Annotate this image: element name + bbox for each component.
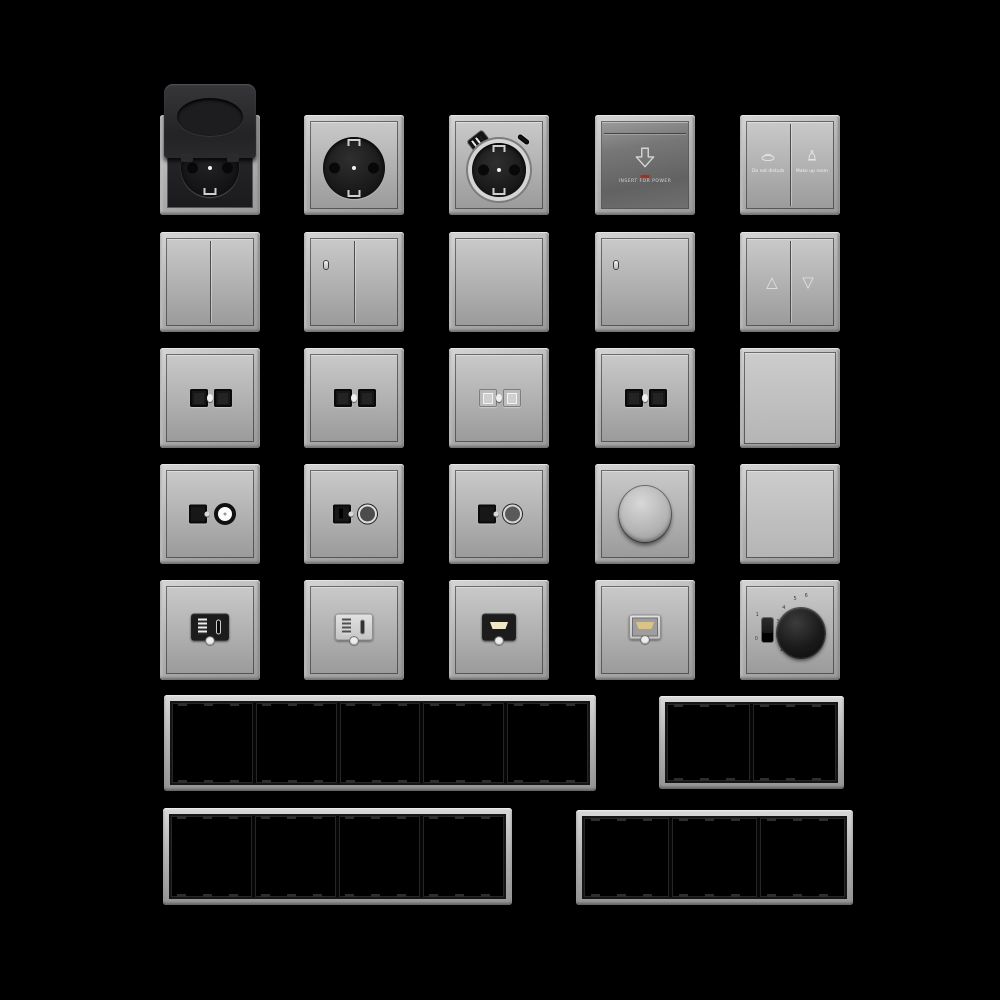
switch-face: Do not disturb Make up room: [747, 122, 833, 208]
tile-usb-charger-grey: [304, 580, 404, 680]
thermostat-switch: [762, 618, 773, 642]
frame-window: [256, 703, 337, 783]
earth-clip-icon: [348, 190, 361, 197]
tile-hdmi-outlet-grey: [595, 580, 695, 680]
tile-hdmi-outlet-black: [449, 580, 549, 680]
usb-a-port-icon: [342, 618, 351, 634]
arrow-down-icon: [632, 146, 658, 174]
rocker-face: [311, 239, 397, 325]
hinged-lid: [164, 84, 256, 158]
do-not-disturb-icon: [760, 147, 776, 166]
switch-on-label: 1: [756, 612, 759, 618]
center-dot: [642, 394, 648, 402]
hdmi-module: [629, 614, 661, 639]
make-up-room-label: Make up room: [795, 169, 829, 175]
tile-usb-charger-black: [160, 580, 260, 680]
outlet-face: [311, 355, 397, 441]
earth-clip-icon: [493, 145, 506, 152]
frame-inner: [665, 702, 838, 783]
tile-dual-data-outlet: [304, 348, 404, 448]
tile-single-rocker-switch: [449, 232, 549, 332]
cover-frame-2-gang: [659, 696, 844, 789]
schuko-recess-icon: [472, 143, 526, 197]
thermostat-knob: [777, 608, 825, 658]
coax-port-icon: [358, 505, 377, 524]
frame-window: [667, 704, 750, 781]
tile-schuko-socket: [304, 115, 404, 215]
switch-off-label: 0: [755, 636, 758, 642]
data-port-icon: [358, 389, 376, 407]
data-port-icon: [479, 389, 497, 407]
center-dot: [497, 168, 501, 172]
tile-blank-cover-plate: [740, 464, 840, 564]
hdmi-port-icon: [636, 622, 654, 629]
coax-port-icon: [503, 505, 522, 524]
rocker-divider: [790, 241, 791, 323]
cover-frame-3-gang: [576, 810, 853, 905]
frame-inner: [169, 814, 506, 899]
data-port-icon: [334, 389, 352, 407]
make-up-room-icon: [805, 147, 819, 166]
center-dot: [207, 394, 213, 402]
data-port-icon: [625, 389, 643, 407]
tile-dual-data-outlet: [160, 348, 260, 448]
dial-number: 4: [782, 605, 785, 611]
shutter-down-icon: ▽: [802, 273, 814, 291]
outlet-face: [602, 355, 688, 441]
outlet-face: [311, 471, 397, 557]
product-render-sheet: INSERT FOR POWER Do not disturb: [0, 0, 1000, 1000]
tile-tv-sat-outlet: [449, 464, 549, 564]
tile-shutter-rocker-switch: △ ▽: [740, 232, 840, 332]
tile-blank-rocker-plate: [740, 348, 840, 448]
coax-port-icon: [214, 503, 236, 525]
usb-charger-module: [335, 613, 373, 640]
data-port-icon: [503, 389, 521, 407]
socket-hole: [509, 165, 520, 176]
center-dot: [496, 394, 502, 402]
frame-window: [340, 703, 421, 783]
blank-face: [747, 471, 833, 557]
tile-double-rocker-switch-indicator: [304, 232, 404, 332]
rocker-face: [456, 239, 542, 325]
tile-rotary-dimmer: [595, 464, 695, 564]
data-port-icon: [649, 389, 667, 407]
module-screw: [206, 637, 214, 645]
frame-window: [672, 818, 757, 897]
socket-face: [456, 122, 542, 208]
frame-window: [584, 818, 669, 897]
dimmer-face: [602, 471, 688, 557]
frame-window: [760, 818, 845, 897]
tile-tv-sat-outlet: [304, 464, 404, 564]
rocker-divider: [210, 241, 211, 323]
data-port-icon: [190, 389, 208, 407]
center-dot: [204, 512, 209, 517]
outlet-face: [167, 355, 253, 441]
frame-window: [255, 816, 336, 897]
socket-face: [311, 122, 397, 208]
card-slot-seam: [604, 133, 686, 134]
status-led: [641, 175, 650, 178]
tile-schuko-socket-with-hinged-lid: [160, 115, 260, 215]
socket-hole: [187, 162, 198, 173]
center-dot: [351, 394, 357, 402]
blank-face: [745, 353, 835, 443]
key-card-face: INSERT FOR POWER: [602, 122, 688, 208]
frame-inner: [170, 701, 590, 785]
thermostat-face: 1 0 1 2 3 4 5 6: [747, 587, 833, 673]
module-screw: [350, 637, 358, 645]
tile-single-rocker-switch-indicator: [595, 232, 695, 332]
outlet-face: [167, 587, 253, 673]
outlet-face: [167, 471, 253, 557]
dimmer-knob: [619, 486, 671, 542]
outlet-face: [311, 587, 397, 673]
center-dot: [348, 512, 353, 517]
center-dot: [208, 166, 212, 170]
center-dot: [493, 512, 498, 517]
dial-number: 6: [805, 593, 808, 599]
do-not-disturb-rocker: Do not disturb: [747, 124, 789, 206]
indicator-led: [324, 261, 328, 269]
socket-hole: [368, 162, 379, 173]
rocker-face: [167, 239, 253, 325]
keycard-label: INSERT FOR POWER: [602, 179, 688, 184]
module-screw: [495, 637, 503, 645]
earth-clip-icon: [348, 139, 361, 146]
usb-charger-module: [191, 613, 229, 640]
dial-number: 5: [793, 596, 796, 602]
earth-clip-icon: [204, 188, 217, 195]
lid-seal-recess: [177, 98, 243, 136]
center-dot: [352, 166, 356, 170]
tile-dual-data-outlet-shuttered: [449, 348, 549, 448]
socket-hole: [222, 162, 233, 173]
cover-frame-4-gang: [163, 808, 512, 905]
outlet-face: [456, 471, 542, 557]
socket-hole: [329, 162, 340, 173]
frame-window: [339, 816, 420, 897]
indicator-led: [614, 261, 618, 269]
frame-window: [423, 816, 504, 897]
hdmi-module: [482, 613, 516, 640]
usb-a-port-icon: [198, 618, 207, 634]
frame-window: [753, 704, 836, 781]
tile-hotel-service-switch: Do not disturb Make up room: [740, 115, 840, 215]
outlet-face: [602, 587, 688, 673]
hdmi-port-icon: [490, 622, 508, 629]
frame-window: [507, 703, 588, 783]
frame-window: [423, 703, 504, 783]
data-port-icon: [214, 389, 232, 407]
frame-inner: [582, 816, 847, 899]
tile-tv-sat-outlet: [160, 464, 260, 564]
do-not-disturb-label: Do not disturb: [751, 169, 785, 175]
tile-thermostat: 1 0 1 2 3 4 5 6: [740, 580, 840, 680]
rocker-face: △ ▽: [747, 239, 833, 325]
earth-clip-icon: [493, 188, 506, 195]
make-up-room-rocker: Make up room: [791, 124, 833, 206]
module-screw: [641, 636, 649, 644]
usb-c-port-icon: [517, 133, 530, 145]
tile-schuko-socket-usb: [449, 115, 549, 215]
tile-double-rocker-switch: [160, 232, 260, 332]
usb-c-port-icon: [217, 620, 220, 633]
frame-window: [171, 816, 252, 897]
usb-c-port-icon: [361, 620, 364, 633]
outlet-face: [456, 587, 542, 673]
rocker-face: [602, 239, 688, 325]
outlet-face: [456, 355, 542, 441]
socket-hole: [478, 165, 489, 176]
rocker-divider: [354, 241, 355, 323]
frame-window: [172, 703, 253, 783]
schuko-recess-icon: [323, 137, 385, 199]
tile-dual-data-outlet: [595, 348, 695, 448]
cover-frame-5-gang: [164, 695, 596, 791]
shutter-up-icon: △: [766, 273, 778, 291]
tile-key-card-switch: INSERT FOR POWER: [595, 115, 695, 215]
